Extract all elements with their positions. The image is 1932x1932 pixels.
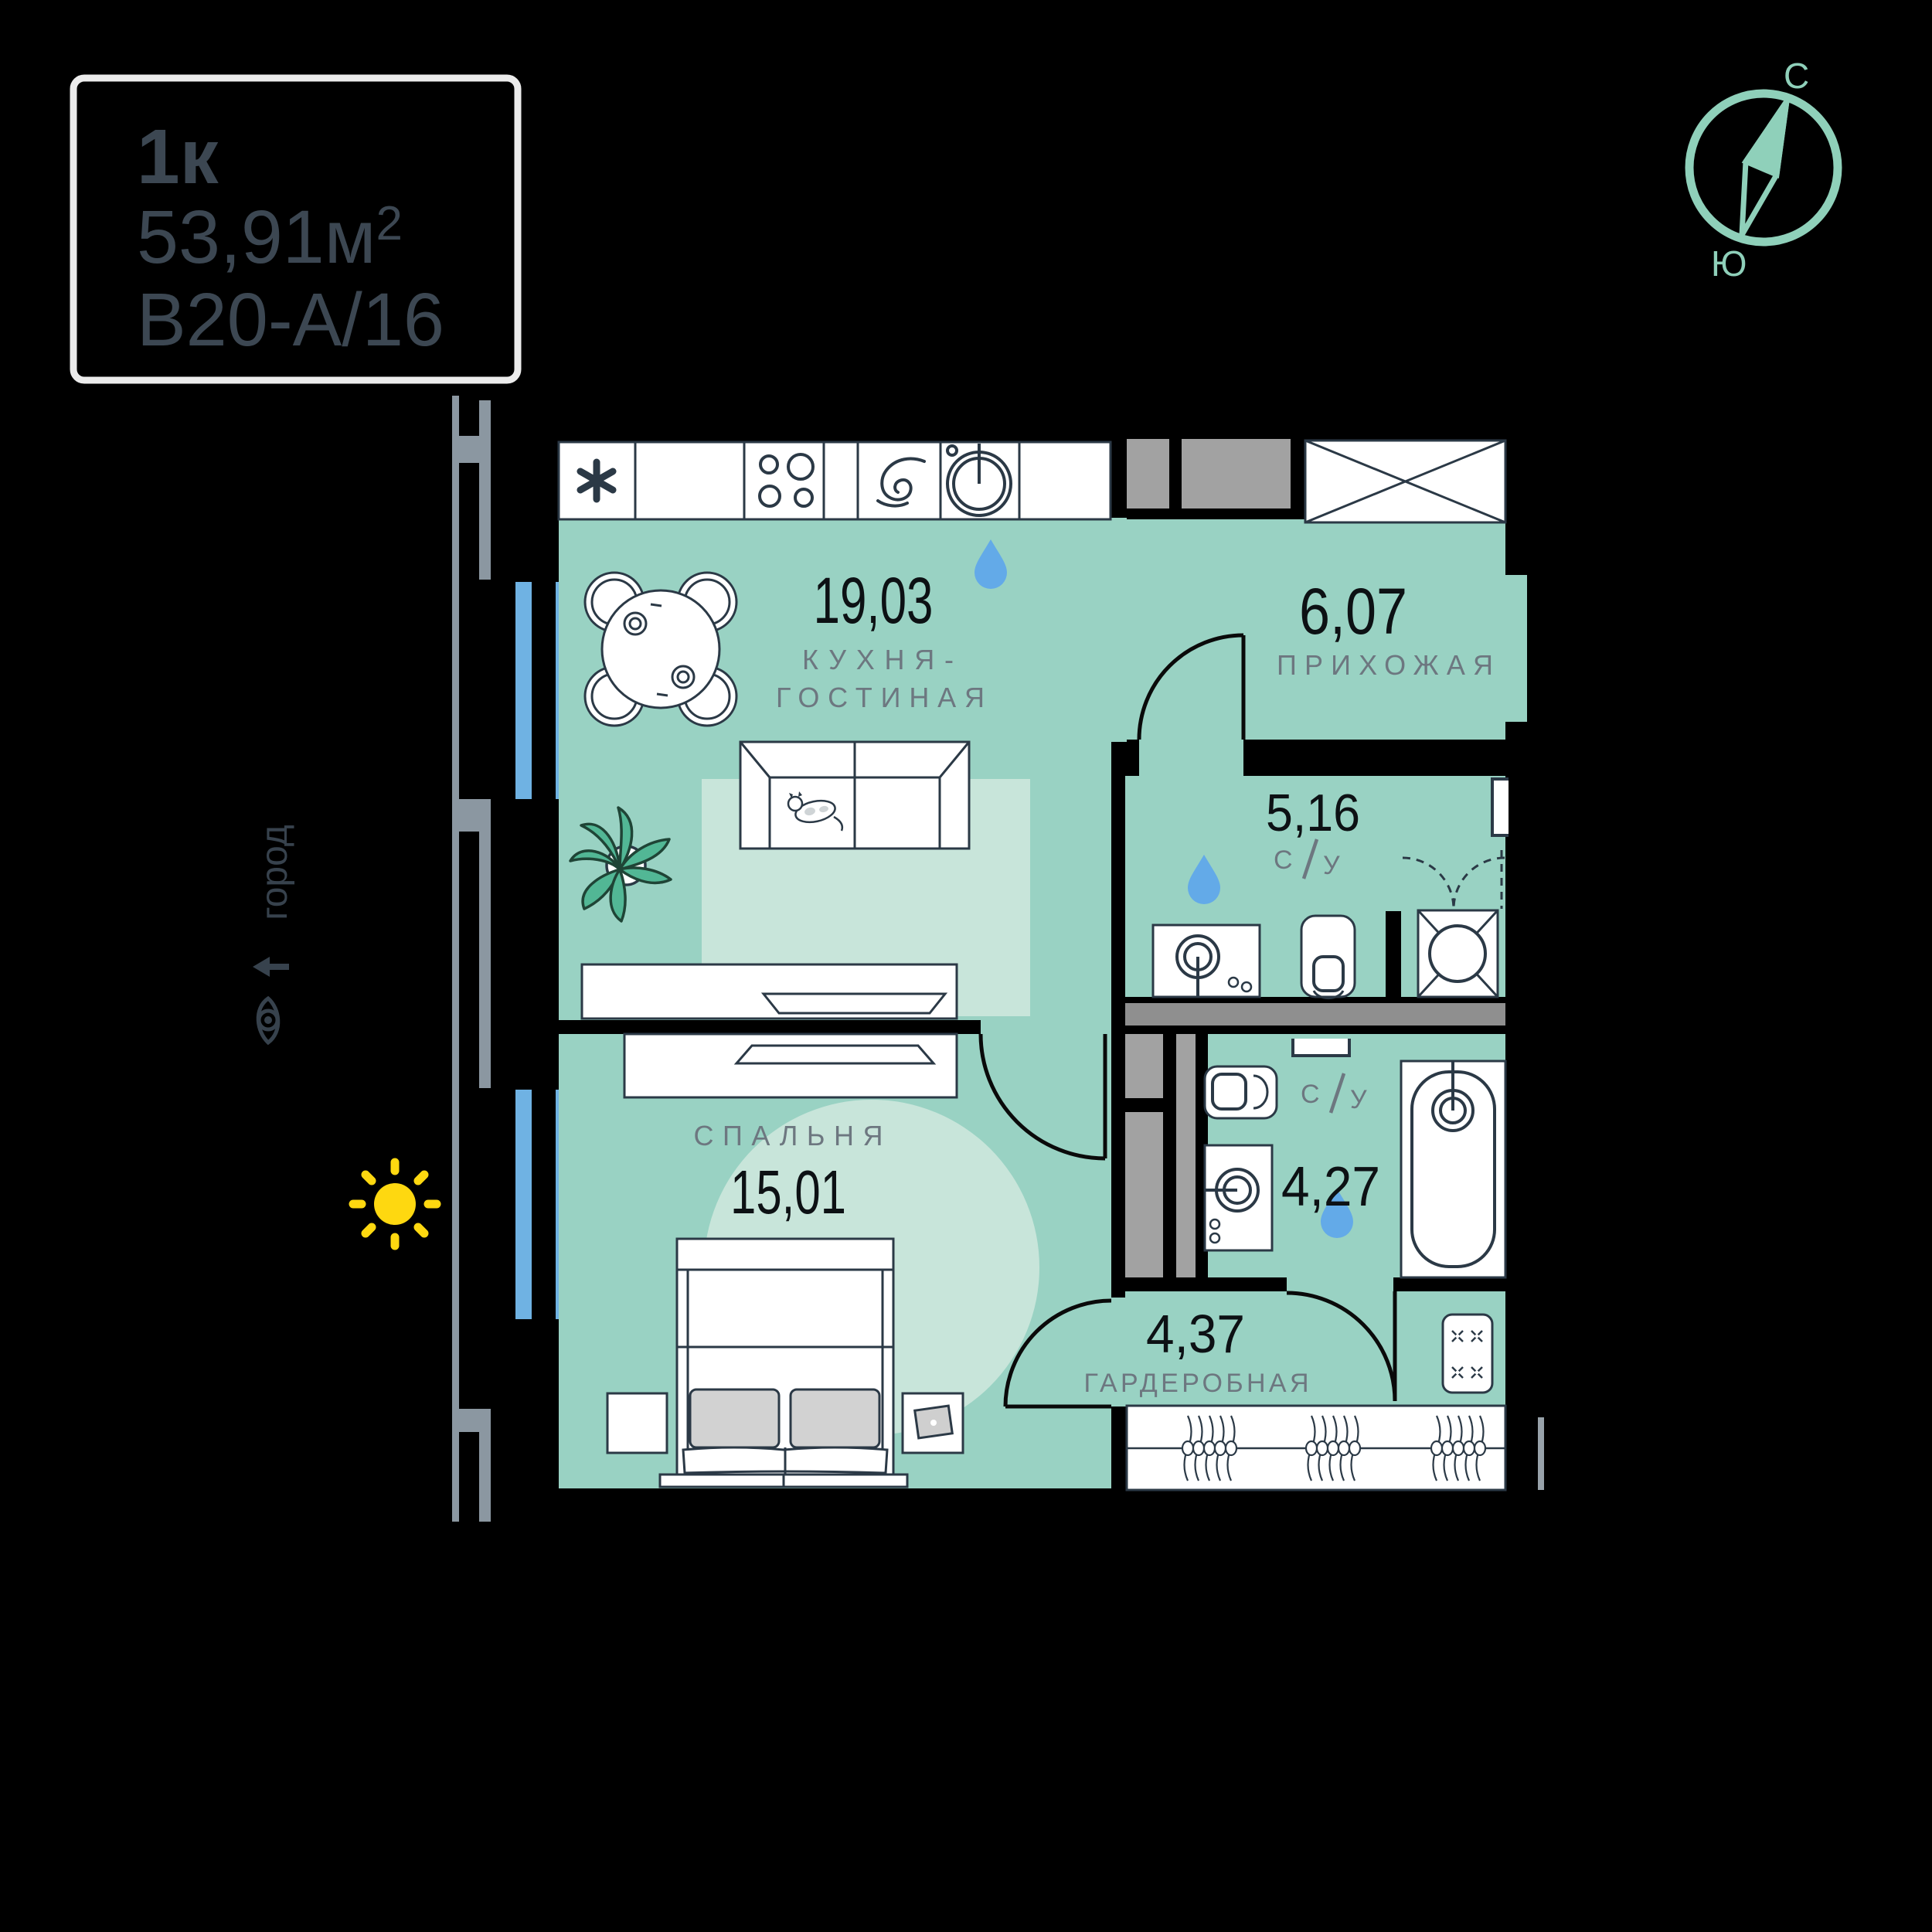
svg-text:5,16: 5,16 xyxy=(1266,784,1360,842)
svg-text:1к: 1к xyxy=(137,114,219,200)
svg-text:4,27: 4,27 xyxy=(1281,1156,1380,1218)
svg-text:ПРИХОЖАЯ: ПРИХОЖАЯ xyxy=(1277,649,1493,681)
svg-text:19,03: 19,03 xyxy=(814,564,934,637)
svg-text:В20-А/16: В20-А/16 xyxy=(137,277,444,362)
svg-text:6,07: 6,07 xyxy=(1299,575,1407,648)
svg-text:Ю: Ю xyxy=(1711,243,1747,284)
svg-text:У: У xyxy=(1323,851,1340,880)
svg-text:С: С xyxy=(1274,845,1293,875)
svg-text:С: С xyxy=(1784,56,1809,96)
svg-text:53,91м2: 53,91м2 xyxy=(137,195,403,279)
svg-text:С: С xyxy=(1301,1080,1320,1109)
svg-text:У: У xyxy=(1350,1085,1367,1114)
svg-text:ГОСТИНАЯ: ГОСТИНАЯ xyxy=(776,682,985,713)
svg-text:город: город xyxy=(254,825,295,920)
svg-text:15,01: 15,01 xyxy=(730,1158,846,1226)
svg-text:4,37: 4,37 xyxy=(1146,1304,1245,1364)
